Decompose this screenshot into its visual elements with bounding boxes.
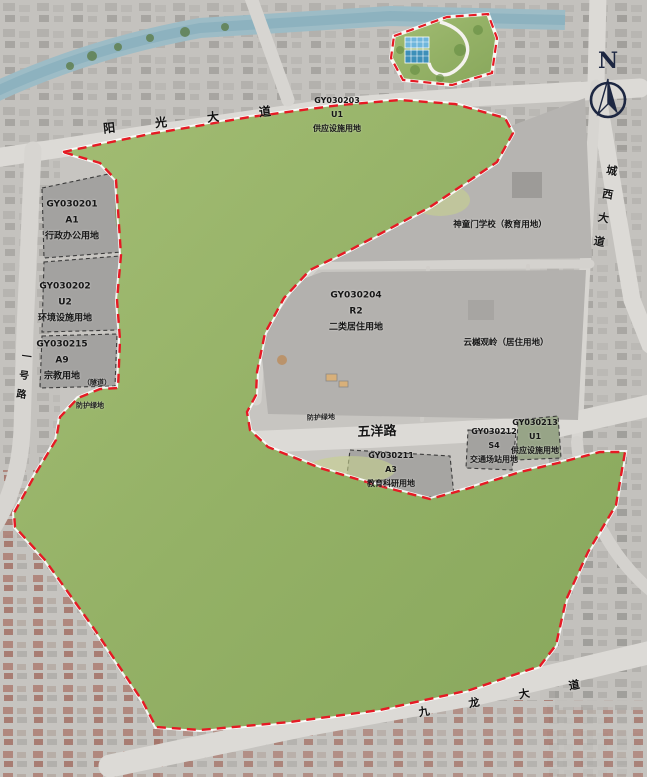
parcel-gy030202: GY030202 U2 环境设施用地: [38, 279, 92, 326]
parcel-use: 教育科研用地: [367, 477, 415, 491]
parcel-use: 行政办公用地: [45, 229, 99, 245]
parcel-code: A3: [367, 463, 415, 477]
parcel-id: GY030203: [313, 94, 361, 108]
annotation-school: 神童门学校（教育用地）: [453, 221, 547, 230]
parcel-id: GY030202: [38, 279, 92, 295]
parcel-gy030201: GY030201 A1 行政办公用地: [45, 197, 99, 244]
parcel-use: 供应设施用地: [313, 122, 361, 136]
parcel-id: GY030204: [329, 288, 383, 304]
annotation-tunnel: （隧道）: [83, 380, 111, 387]
annotation-buffer-green-west: 防护绿地: [76, 403, 104, 410]
parcel-id: GY030213: [511, 416, 559, 430]
parcel-code: R2: [329, 304, 383, 320]
road-label-wuyang: 五洋路: [357, 425, 396, 439]
parcel-gy030211: GY030211 A3 教育科研用地: [367, 449, 415, 491]
parcel-code: U2: [38, 295, 92, 311]
parcel-code: A9: [36, 353, 87, 369]
parcel-use: 二类居住用地: [329, 320, 383, 336]
parcel-id: GY030211: [367, 449, 415, 463]
north-label: N: [583, 50, 633, 72]
parcel-code: A1: [45, 213, 99, 229]
parcel-gy030203: GY030203 U1 供应设施用地: [313, 94, 361, 136]
parcel-id: GY030215: [36, 337, 87, 353]
parcel-use: 供应设施用地: [511, 444, 559, 458]
parcel-use: 环境设施用地: [38, 311, 92, 327]
parcel-gy030204: GY030204 R2 二类居住用地: [329, 288, 383, 335]
parcel-code: U1: [313, 108, 361, 122]
parcel-gy030215: GY030215 A9 宗教用地: [36, 337, 87, 384]
annotation-buffer-green-road: 防护绿地: [307, 414, 335, 422]
north-indicator: N: [583, 50, 633, 128]
parcel-use: 宗教用地: [36, 369, 87, 385]
parcel-code: U1: [511, 430, 559, 444]
parcel-gy030213: GY030213 U1 供应设施用地: [511, 416, 559, 458]
parcel-id: GY030201: [45, 197, 99, 213]
plan-map[interactable]: N 阳 光 大 道 城西大道 五洋路 九 龙 大 道 一号路 GY030201 …: [0, 0, 647, 777]
annotation-residence: 云樾观岭（居住用地）: [463, 339, 548, 348]
